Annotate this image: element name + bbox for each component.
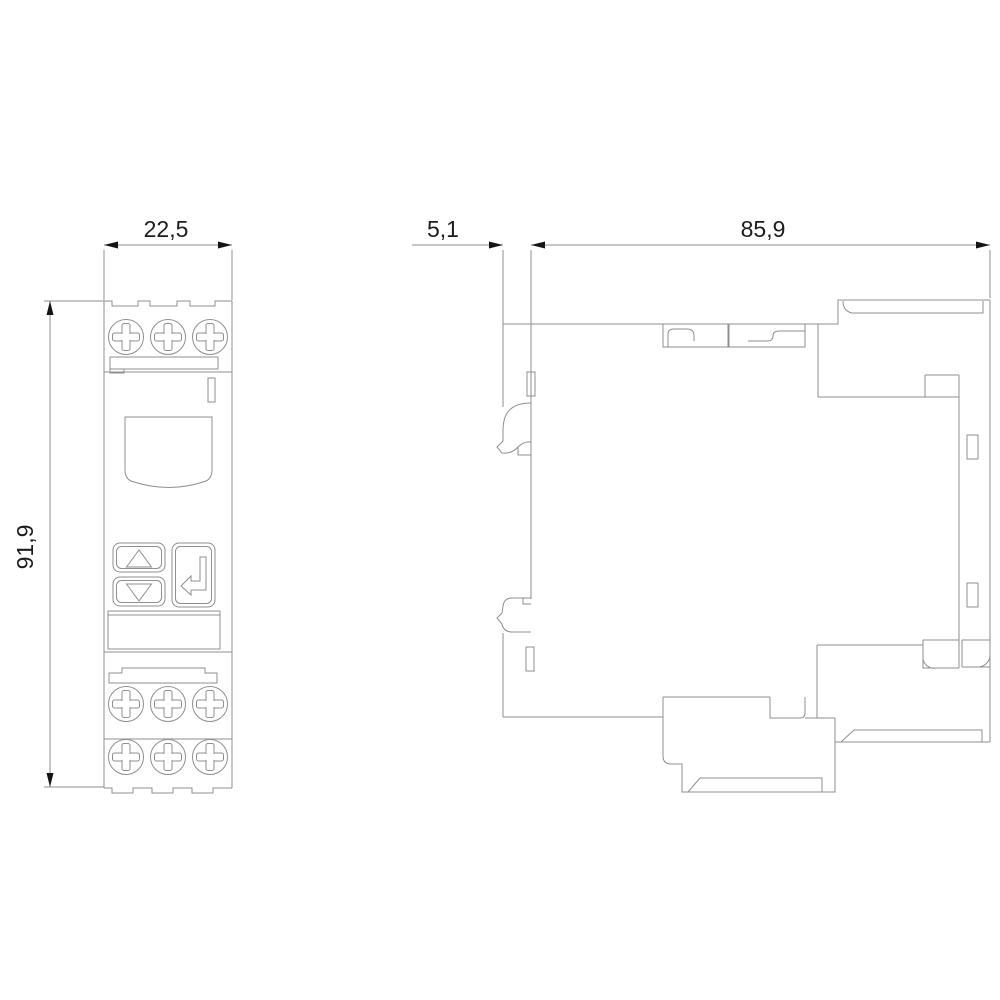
bezel-slot-bottom bbox=[967, 583, 978, 607]
arrow-down-icon bbox=[127, 584, 152, 601]
top-vents bbox=[663, 324, 805, 347]
bottom-label-strip bbox=[109, 668, 217, 683]
clip-slot-bottom bbox=[526, 647, 534, 671]
dimension-front-height: 91,9 bbox=[12, 301, 104, 787]
enter-button bbox=[172, 543, 215, 607]
dimension-front-width: 22,5 bbox=[104, 216, 232, 300]
front-width-label: 22,5 bbox=[144, 216, 189, 242]
din-rail-clip-top bbox=[497, 403, 531, 455]
screw-terminal bbox=[109, 687, 144, 722]
screw-terminal bbox=[193, 320, 228, 355]
screw-terminal bbox=[151, 740, 186, 775]
side-depth-label: 85,9 bbox=[741, 216, 786, 242]
terminal-screws-top bbox=[109, 320, 228, 355]
bezel-slot-top bbox=[967, 435, 978, 459]
arrow-up-icon bbox=[127, 550, 152, 567]
screw-terminal bbox=[151, 687, 186, 722]
arrowhead-right bbox=[218, 242, 232, 249]
bezel-caps bbox=[923, 640, 990, 668]
screw-terminal bbox=[193, 740, 228, 775]
top-label-bar bbox=[110, 357, 218, 373]
front-section-lines bbox=[104, 372, 232, 739]
arrowhead-left bbox=[104, 242, 118, 249]
screw-terminal bbox=[109, 320, 144, 355]
enter-arrow-icon bbox=[181, 557, 206, 595]
dimension-side-depth: 85,9 bbox=[531, 216, 990, 298]
display-window bbox=[125, 417, 212, 488]
bottom-terminal-block bbox=[817, 645, 990, 742]
front-height-label: 91,9 bbox=[12, 525, 38, 570]
side-view bbox=[497, 250, 990, 792]
side-rail-offset-label: 5,1 bbox=[427, 216, 459, 242]
terminal-screws-bottom bbox=[109, 687, 228, 775]
din-rail-clip-bottom bbox=[497, 598, 531, 632]
labeling-field bbox=[108, 611, 220, 649]
latch-slot bbox=[208, 378, 215, 402]
dimensional-drawing: 22,5 91,9 5,1 85,9 bbox=[0, 0, 1000, 1000]
side-body-outline bbox=[503, 250, 990, 742]
screw-terminal bbox=[193, 687, 228, 722]
arrowhead-up bbox=[47, 301, 54, 315]
down-button bbox=[113, 577, 165, 606]
dimension-side-rail-offset: 5,1 bbox=[412, 216, 503, 249]
screw-terminal bbox=[109, 740, 144, 775]
vent-inner-detail bbox=[668, 329, 805, 347]
arrowhead-left bbox=[531, 242, 545, 249]
front-view bbox=[104, 301, 232, 793]
up-button bbox=[113, 543, 165, 572]
top-terminal-strip bbox=[843, 301, 983, 313]
arrowhead-right bbox=[489, 242, 503, 249]
arrowhead-right bbox=[976, 242, 990, 249]
bottom-housing-block bbox=[663, 697, 835, 792]
arrowhead-down bbox=[47, 773, 54, 787]
screw-terminal bbox=[151, 320, 186, 355]
technical-drawing-page: 22,5 91,9 5,1 85,9 bbox=[0, 0, 1000, 1000]
